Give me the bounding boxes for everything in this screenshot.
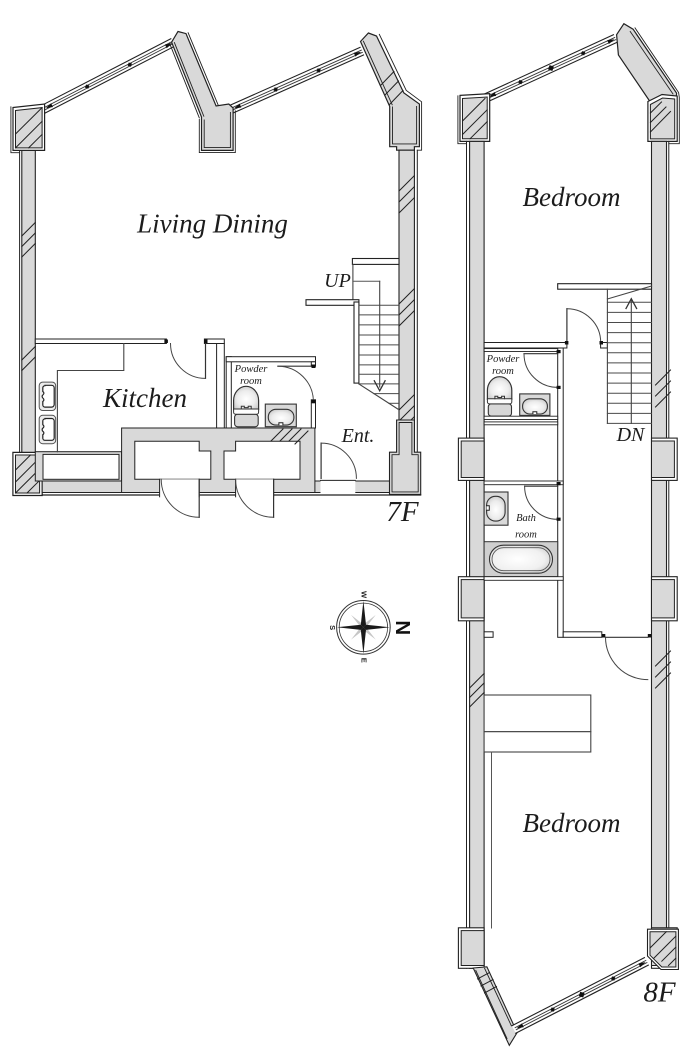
- svg-text:DN: DN: [616, 424, 646, 446]
- svg-text:Bedroom: Bedroom: [523, 808, 621, 838]
- svg-text:Bath: Bath: [516, 513, 536, 524]
- svg-text:S: S: [328, 625, 337, 630]
- svg-text:E: E: [359, 658, 368, 663]
- svg-text:room: room: [492, 366, 514, 377]
- svg-text:Powder: Powder: [486, 354, 521, 365]
- svg-text:Powder: Powder: [234, 364, 269, 375]
- svg-text:Ent.: Ent.: [341, 425, 375, 447]
- svg-text:room: room: [240, 376, 262, 387]
- svg-text:Living Dining: Living Dining: [136, 209, 288, 239]
- svg-text:8F: 8F: [643, 977, 676, 1009]
- svg-text:room: room: [515, 530, 537, 541]
- svg-text:Bedroom: Bedroom: [523, 182, 621, 212]
- svg-text:7F: 7F: [386, 496, 419, 528]
- svg-text:UP: UP: [324, 270, 351, 292]
- svg-text:Kitchen: Kitchen: [102, 383, 187, 413]
- svg-text:N: N: [391, 620, 414, 635]
- svg-text:W: W: [359, 591, 368, 599]
